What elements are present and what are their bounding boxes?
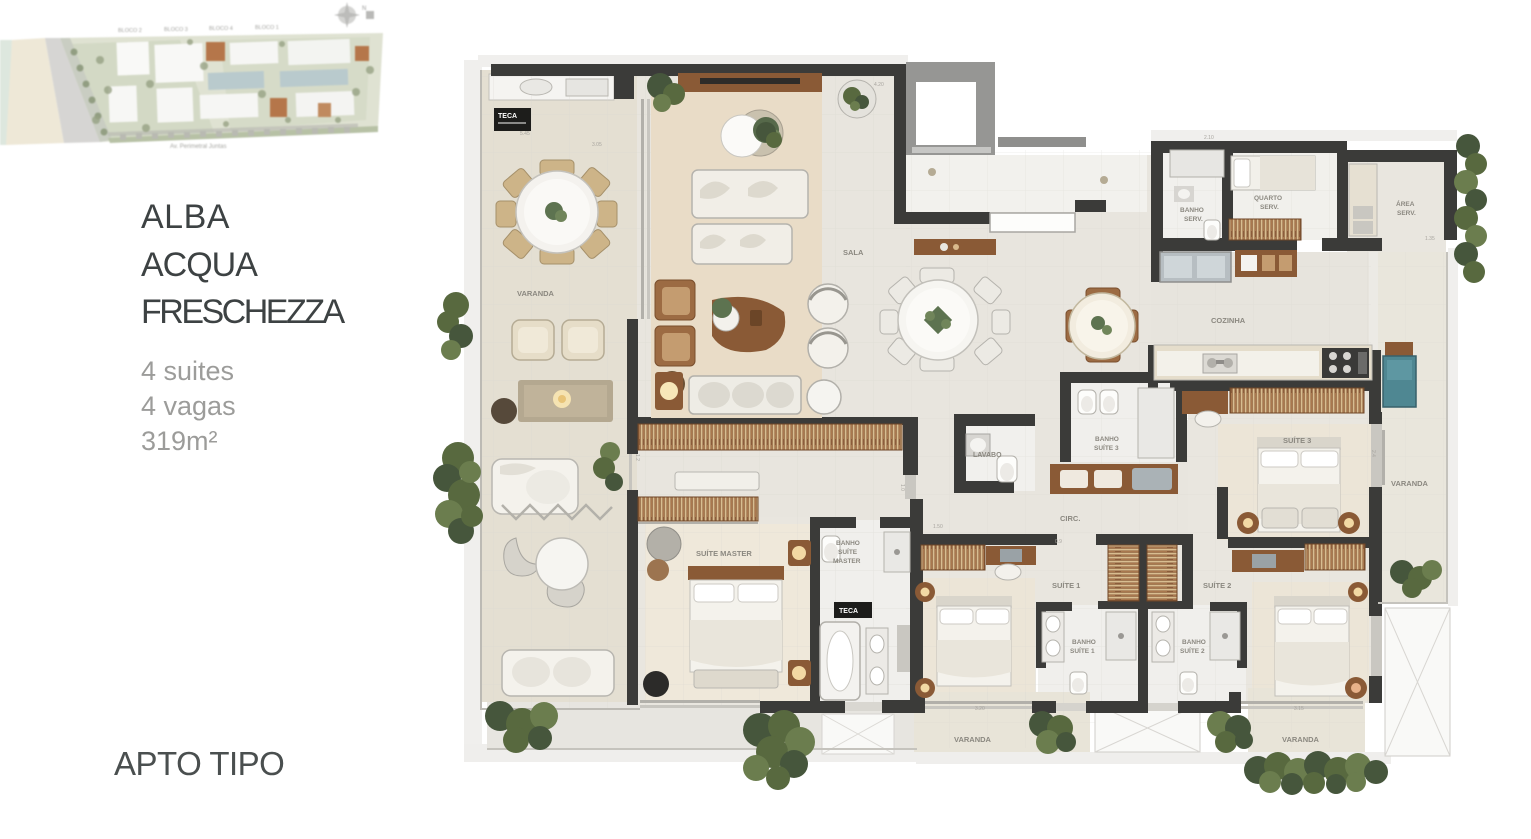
svg-text:1.0: 1.0: [899, 484, 905, 491]
svg-text:3.05: 3.05: [592, 142, 602, 148]
svg-text:4 suites: 4 suites: [141, 356, 234, 386]
svg-text:ALBA: ALBA: [141, 198, 230, 236]
svg-text:TECA: TECA: [839, 608, 858, 615]
svg-text:3.15: 3.15: [1294, 706, 1304, 712]
svg-text:2.10: 2.10: [1204, 135, 1214, 141]
svg-text:MASTER: MASTER: [833, 558, 861, 565]
svg-text:SUÍTE: SUÍTE: [838, 547, 858, 556]
svg-text:Av. Perimetral Juntas: Av. Perimetral Juntas: [170, 144, 226, 150]
svg-text:4 vagas: 4 vagas: [141, 391, 236, 421]
svg-text:BANHO: BANHO: [1095, 436, 1119, 443]
svg-text:1.35: 1.35: [1425, 236, 1435, 242]
svg-text:4.20: 4.20: [874, 82, 884, 88]
svg-text:LAVABO: LAVABO: [973, 452, 1002, 459]
svg-text:SUÍTE 1: SUÍTE 1: [1052, 581, 1080, 590]
svg-text:APTO TIPO: APTO TIPO: [114, 745, 284, 782]
svg-text:VARANDA: VARANDA: [1282, 735, 1320, 744]
svg-text:ÁREA: ÁREA: [1396, 199, 1415, 208]
svg-text:BLOCO 3: BLOCO 3: [164, 27, 188, 33]
svg-text:BLOCO 2: BLOCO 2: [118, 28, 142, 34]
svg-text:SUÍTE MASTER: SUÍTE MASTER: [696, 549, 752, 558]
svg-text:FRESCHEZZA: FRESCHEZZA: [141, 293, 346, 331]
svg-text:1.2: 1.2: [634, 454, 640, 461]
svg-text:BANHO: BANHO: [1072, 639, 1096, 646]
svg-text:2.4: 2.4: [1370, 450, 1376, 457]
svg-text:0.9: 0.9: [1055, 539, 1062, 545]
svg-text:VARANDA: VARANDA: [1391, 479, 1429, 488]
svg-text:COZINHA: COZINHA: [1211, 316, 1246, 325]
svg-text:319m²: 319m²: [141, 426, 218, 456]
svg-text:CIRC.: CIRC.: [1060, 514, 1080, 523]
svg-text:N: N: [362, 6, 366, 12]
svg-text:BANHO: BANHO: [1182, 639, 1206, 646]
svg-text:5.45: 5.45: [520, 131, 530, 137]
svg-text:SERV.: SERV.: [1260, 204, 1279, 211]
svg-text:SERV.: SERV.: [1184, 216, 1203, 223]
svg-text:VARANDA: VARANDA: [954, 735, 992, 744]
svg-text:VARANDA: VARANDA: [517, 289, 555, 298]
svg-text:TECA: TECA: [498, 113, 517, 120]
svg-text:SUÍTE 2: SUÍTE 2: [1180, 646, 1205, 655]
svg-text:SUÍTE 2: SUÍTE 2: [1203, 581, 1231, 590]
svg-text:BLOCO 1: BLOCO 1: [255, 25, 279, 31]
svg-text:SALA: SALA: [843, 248, 864, 257]
svg-text:BANHO: BANHO: [1180, 207, 1204, 214]
svg-text:3.20: 3.20: [975, 706, 985, 712]
svg-text:QUARTO: QUARTO: [1254, 195, 1282, 202]
svg-text:SUÍTE 3: SUÍTE 3: [1283, 436, 1311, 445]
svg-text:BLOCO 4: BLOCO 4: [209, 26, 233, 32]
svg-text:1.50: 1.50: [933, 524, 943, 530]
svg-text:SUÍTE 3: SUÍTE 3: [1094, 443, 1119, 452]
svg-text:SERV.: SERV.: [1397, 210, 1416, 217]
svg-text:SUÍTE 1: SUÍTE 1: [1070, 646, 1095, 655]
svg-text:BANHO: BANHO: [836, 540, 860, 547]
svg-text:ACQUA: ACQUA: [141, 246, 258, 284]
